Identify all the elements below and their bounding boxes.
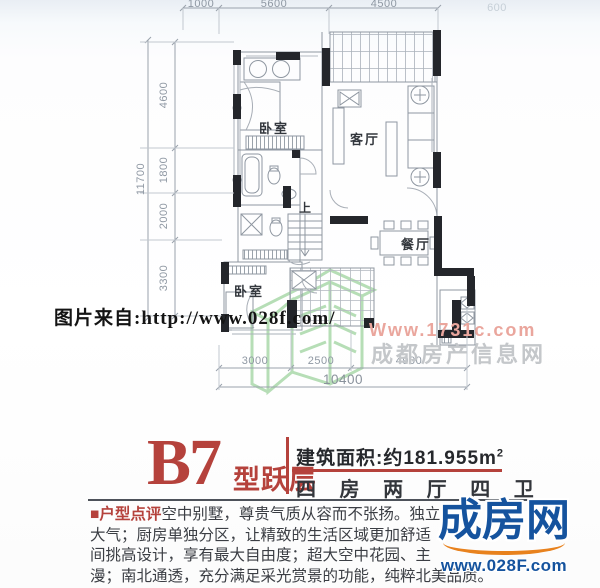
red-divider bbox=[286, 437, 289, 494]
dim-left-3300: 3300 bbox=[158, 258, 170, 298]
floorplan-flyer: 卧室 客厅 餐厅 卧室 上 1000 5600 4500 600 11700 4… bbox=[0, 0, 600, 588]
dim-bottom-3000: 3000 bbox=[235, 355, 275, 367]
review-line-1-text: 空中别墅，尊贵气质从容而不张扬。独立 bbox=[161, 506, 440, 523]
area-superscript: 2 bbox=[497, 448, 504, 460]
brand-name: 成房网 bbox=[436, 497, 572, 545]
dim-top-4500: 4500 bbox=[364, 0, 404, 10]
watermark-site-name: 成都房产信息网 bbox=[371, 337, 546, 369]
area-text: 建筑面积:约181.955m bbox=[296, 448, 497, 469]
room-label-bedroom-bottom: 卧室 bbox=[234, 284, 264, 299]
brand-logo: 成房网 www.028F.com bbox=[436, 497, 572, 576]
brand-url: www.028F.com bbox=[436, 556, 572, 576]
area-underline bbox=[292, 469, 502, 472]
room-label-bedroom-top: 卧室 bbox=[259, 121, 289, 136]
dim-top-1000: 1000 bbox=[187, 0, 215, 10]
review-tag: ■户型点评 bbox=[90, 506, 161, 523]
room-label-dining: 餐厅 bbox=[400, 237, 431, 252]
dim-left-4600: 4600 bbox=[158, 75, 170, 115]
stairs-up-label: 上 bbox=[299, 200, 313, 215]
dim-left-2000: 2000 bbox=[158, 196, 170, 236]
unit-code: B7 bbox=[147, 425, 220, 501]
watermark-caption: 图片来自:http://www.028f.com/ bbox=[54, 303, 335, 330]
area-label: 建筑面积:约181.955m2 bbox=[296, 443, 504, 470]
dim-left-total-11700: 11700 bbox=[135, 159, 147, 199]
dim-bottom-total-10400: 10400 bbox=[313, 372, 373, 387]
dim-top-5600: 5600 bbox=[254, 0, 294, 10]
dim-bottom-2500: 2500 bbox=[301, 355, 341, 367]
room-label-living: 客厅 bbox=[350, 132, 380, 147]
dim-left-1800: 1800 bbox=[158, 150, 170, 190]
dim-top-right-600: 600 bbox=[482, 2, 512, 14]
